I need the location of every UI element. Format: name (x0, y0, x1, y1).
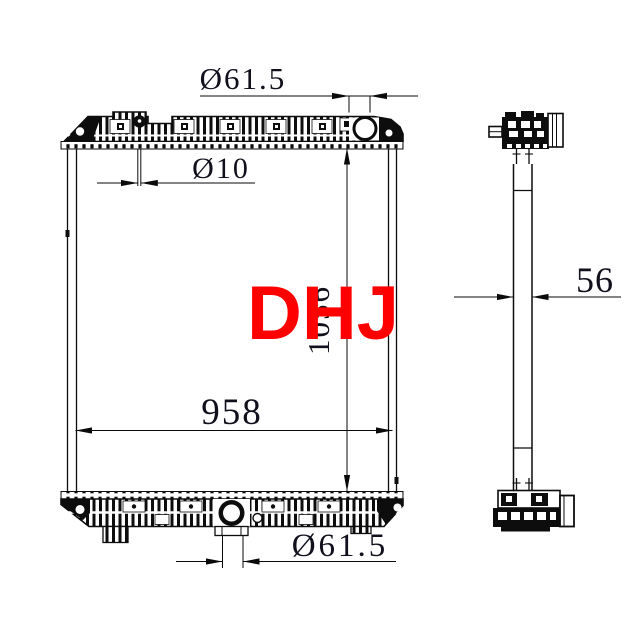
side-top-bracket (489, 111, 563, 164)
bottom-right-mount-hole (394, 504, 402, 512)
top-port-hole (354, 118, 376, 140)
left-side-bracket-tab (66, 230, 70, 237)
bottom-left-mount-hole (76, 505, 85, 514)
bottom-header-strip (61, 492, 403, 500)
side-bottom-bracket (493, 478, 574, 532)
top-right-mount-hole (386, 130, 393, 137)
dimension-label-bottom-port: Ø61.5 (292, 528, 389, 564)
dimension-label-inlet-pipe: Ø10 (192, 152, 250, 185)
top-header-strip (61, 142, 403, 150)
bottom-port-collar (215, 527, 248, 536)
bottom-left-foot (103, 527, 128, 543)
bottom-port-hole (223, 505, 240, 522)
top-tank (61, 112, 403, 149)
right-side-bracket-tab (395, 477, 399, 484)
dimension-label-thickness: 56 (576, 260, 614, 300)
drain-plug-hole (253, 514, 262, 523)
top-left-mount-hole (76, 127, 84, 135)
filler-dome-dot (138, 119, 142, 123)
dimension-label-core-width: 958 (201, 392, 263, 433)
side-core-profile (514, 164, 533, 491)
radiator-side-view (489, 111, 574, 532)
watermark: DHJ (247, 276, 407, 366)
side-top-flange (548, 114, 563, 148)
side-bottom-flange (560, 496, 574, 527)
technical-drawing: Ø61.5 Ø10 1056 958 Ø61.5 56 DHJ (0, 0, 635, 635)
dimension-label-top-port: Ø61.5 (200, 61, 287, 96)
